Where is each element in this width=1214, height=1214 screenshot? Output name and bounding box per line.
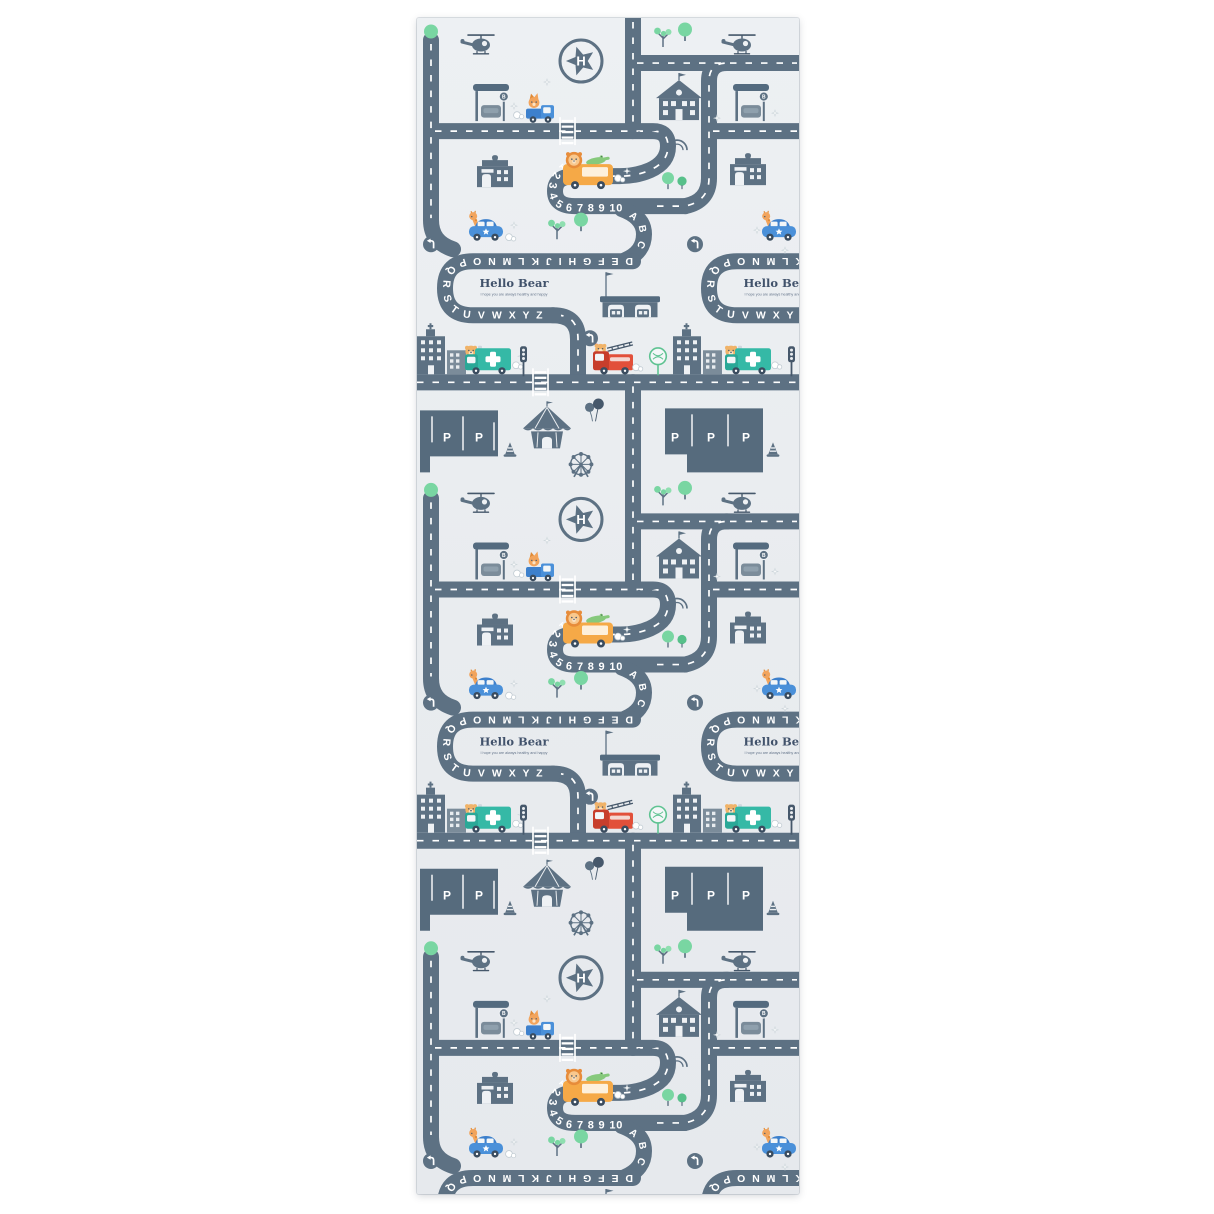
rug-image: B: [417, 18, 799, 1194]
rug-illustration: B: [417, 18, 799, 1194]
rug-base: [417, 18, 799, 1194]
